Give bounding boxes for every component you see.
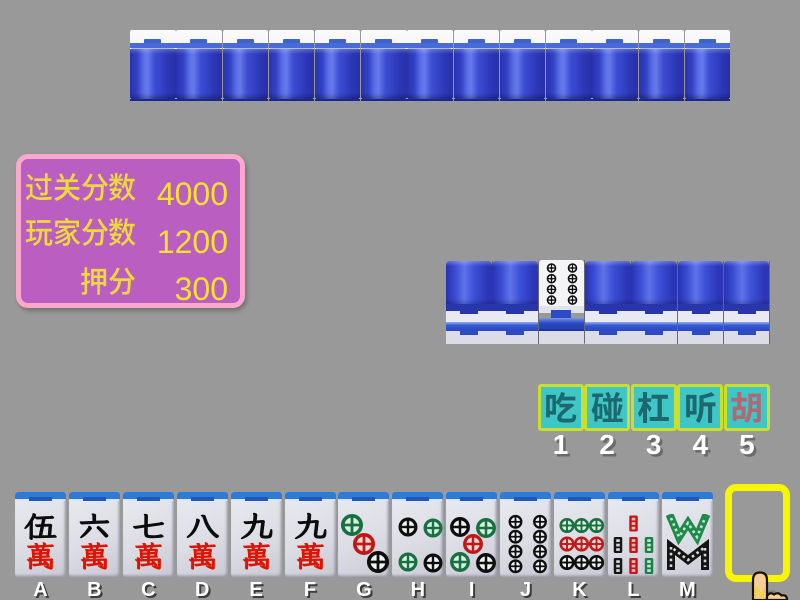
svg-text:N: N — [753, 585, 767, 600]
